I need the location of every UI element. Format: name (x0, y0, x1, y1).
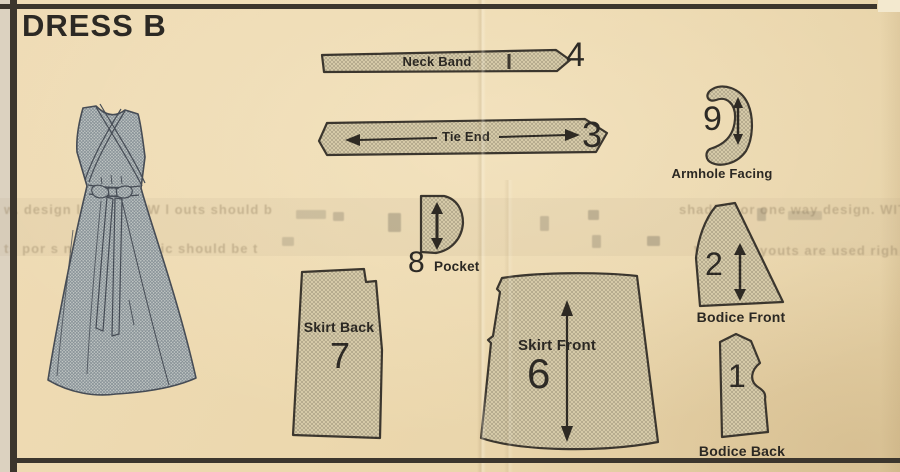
pattern-artwork (0, 0, 900, 472)
paper-crease-vertical-2 (504, 180, 513, 472)
skirt-front-number: 6 (527, 353, 550, 395)
tie-end-number: 3 (582, 117, 602, 153)
skirt-back-number: 7 (330, 338, 350, 374)
bodice-back-number: 1 (728, 360, 746, 392)
pattern-sheet: w. design la OUE YAW l outs should b ts … (0, 0, 900, 472)
armhole-facing-number: 9 (703, 102, 722, 136)
bodice-back-label: Bodice Back (699, 443, 785, 459)
dress-illustration (48, 104, 196, 395)
paper-crease-vertical (477, 0, 486, 472)
piece-pocket (421, 196, 463, 253)
border-bottom-rule (14, 458, 900, 463)
skirt-back-label: Skirt Back (304, 319, 374, 335)
neck-band-label: Neck Band (403, 54, 472, 69)
bodice-front-label: Bodice Front (697, 309, 786, 325)
page-title: DRESS B (22, 8, 167, 44)
bodice-front-number: 2 (705, 248, 723, 280)
border-left-rule (10, 0, 17, 472)
border-top-rule (0, 4, 877, 9)
pocket-number: 8 (408, 248, 425, 278)
neck-band-number: 4 (566, 38, 585, 72)
pocket-label: Pocket (434, 259, 479, 274)
armhole-facing-label: Armhole Facing (671, 166, 772, 181)
